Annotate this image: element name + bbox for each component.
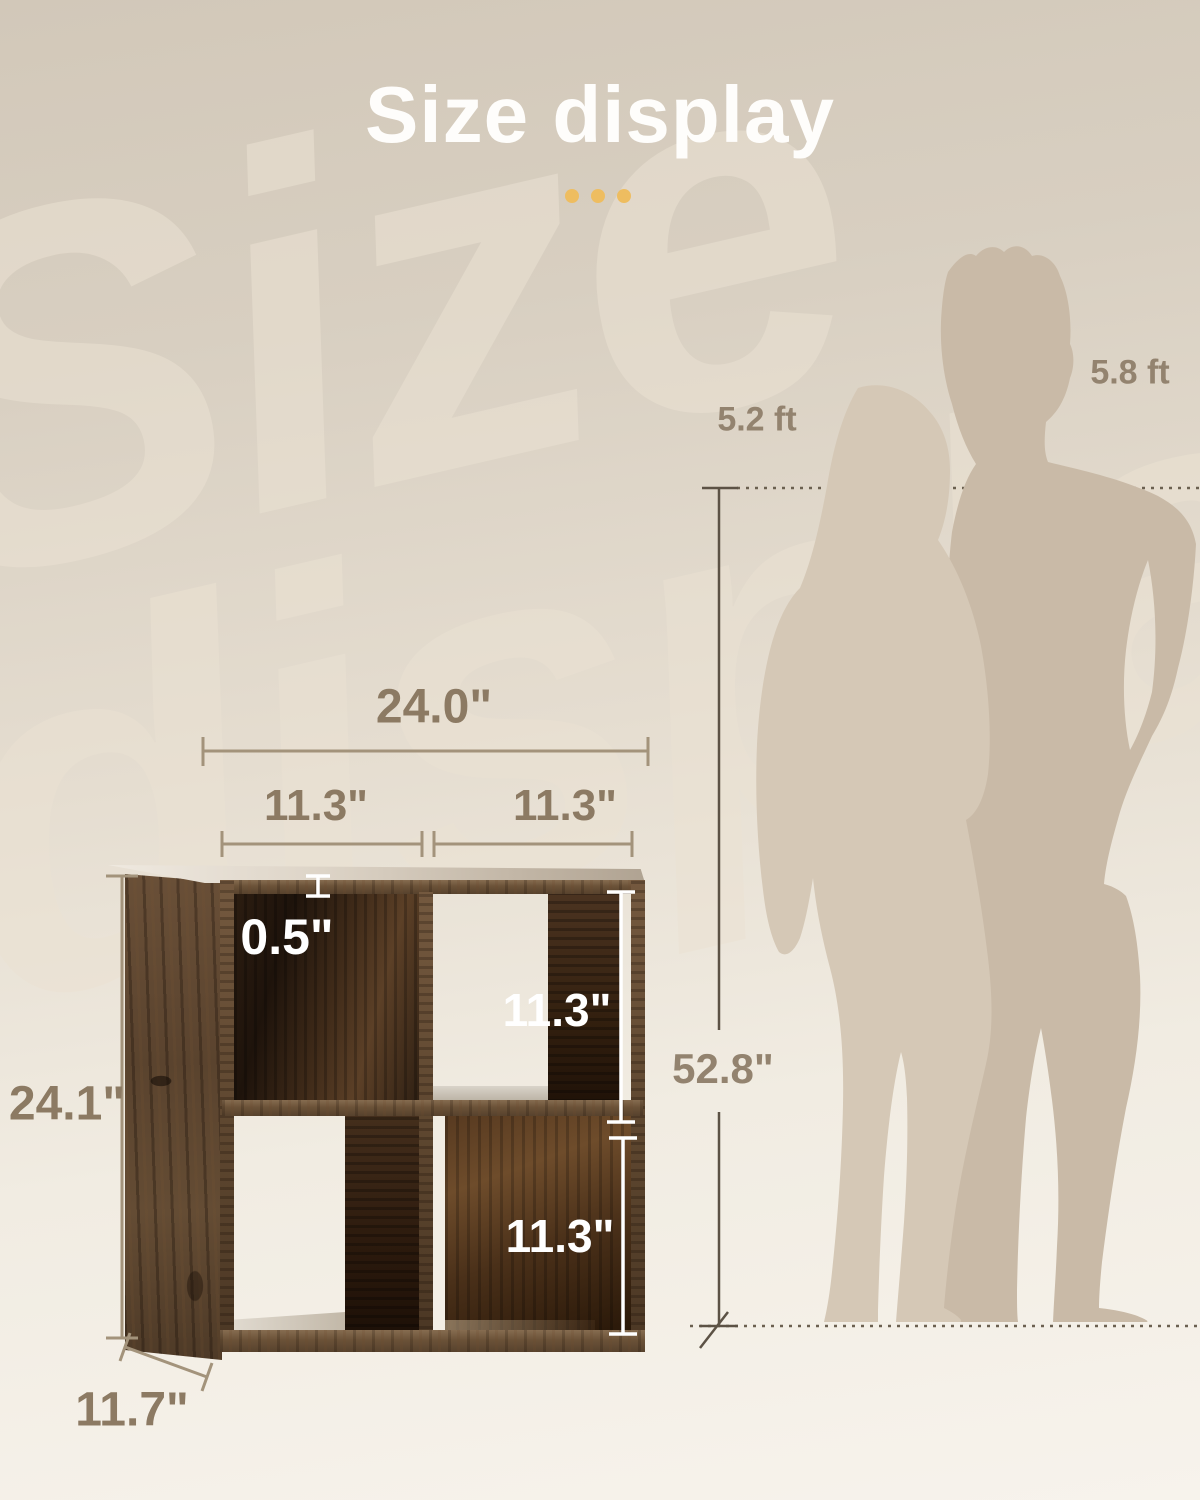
size-display-infographic: { "title": "Size display", "watermark": … — [0, 0, 1200, 1500]
right-cube-width-label: 11.3" — [513, 781, 617, 831]
man-height-label: 5.8 ft — [1090, 354, 1169, 393]
accent-dot-icon — [565, 189, 579, 203]
total-height-label: 24.1" — [9, 1077, 125, 1132]
left-cube-width-label: 11.3" — [264, 781, 368, 831]
bottom-cube-height-label: 11.3" — [506, 1209, 615, 1263]
top-cube-height-label: 11.3" — [503, 983, 612, 1037]
accent-dot-icon — [617, 189, 631, 203]
panel-thickness-marker — [306, 876, 330, 896]
depth-line — [125, 1347, 207, 1377]
total-width-label: 24.0" — [376, 680, 492, 735]
reference-height-label: 52.8" — [672, 1045, 774, 1093]
panel-thickness-label: 0.5" — [240, 908, 333, 966]
woman-height-label: 5.2 ft — [717, 401, 796, 440]
depth-label: 11.7" — [75, 1383, 189, 1438]
page-title: Size display — [365, 69, 835, 161]
accent-dot-icon — [591, 189, 605, 203]
dimension-lines — [0, 0, 1200, 1500]
